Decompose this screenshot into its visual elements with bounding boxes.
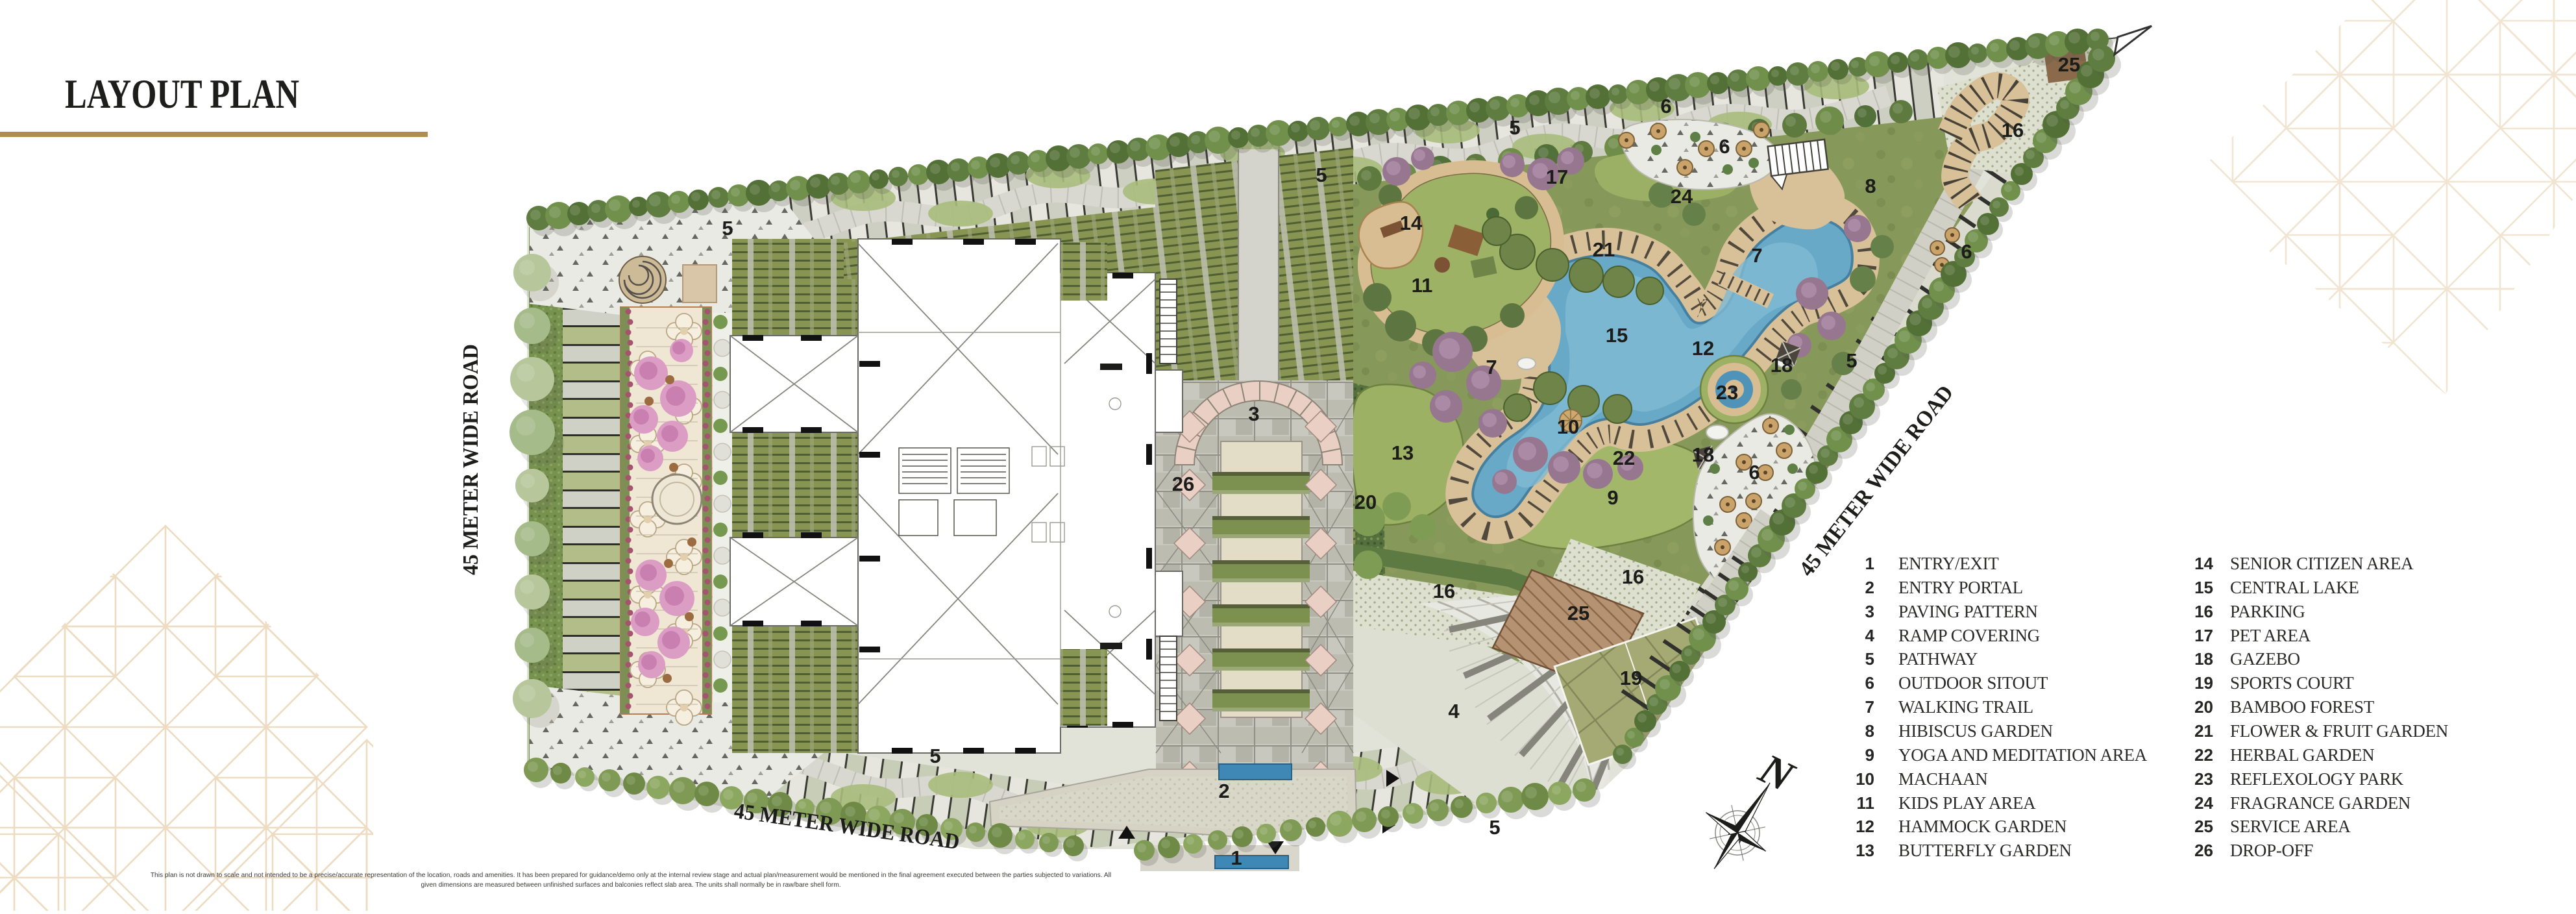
svg-text:This plan is not drawn to scal: This plan is not drawn to scale and not … — [151, 872, 1111, 879]
svg-text:9: 9 — [1607, 486, 1618, 509]
svg-text:21: 21 — [2194, 721, 2213, 741]
svg-text:26: 26 — [2194, 841, 2213, 860]
svg-text:9: 9 — [1865, 745, 1874, 765]
svg-text:7: 7 — [1865, 697, 1874, 717]
svg-text:17: 17 — [1546, 166, 1568, 188]
svg-text:SERVICE AREA: SERVICE AREA — [2230, 817, 2351, 836]
svg-text:HERBAL GARDEN: HERBAL GARDEN — [2230, 745, 2374, 765]
svg-text:25: 25 — [1567, 602, 1589, 624]
svg-text:10: 10 — [1856, 769, 1874, 789]
svg-text:MACHAAN: MACHAAN — [1898, 769, 1987, 789]
svg-text:FRAGRANCE GARDEN: FRAGRANCE GARDEN — [2230, 793, 2410, 813]
svg-text:18: 18 — [1771, 354, 1793, 377]
svg-text:6: 6 — [1660, 95, 1671, 117]
svg-text:8: 8 — [1865, 175, 1876, 197]
svg-text:HAMMOCK GARDEN: HAMMOCK GARDEN — [1898, 817, 2067, 836]
svg-text:YOGA AND MEDITATION AREA: YOGA AND MEDITATION AREA — [1898, 745, 2148, 765]
svg-text:20: 20 — [1355, 491, 1377, 513]
svg-text:WALKING TRAIL: WALKING TRAIL — [1898, 697, 2033, 717]
svg-text:11: 11 — [1412, 274, 1433, 297]
svg-text:19: 19 — [1620, 667, 1642, 689]
svg-text:5: 5 — [929, 745, 940, 767]
svg-text:24: 24 — [2194, 793, 2213, 813]
svg-text:DROP-OFF: DROP-OFF — [2230, 841, 2313, 860]
svg-text:16: 16 — [1622, 565, 1644, 588]
svg-text:1: 1 — [1231, 846, 1242, 869]
svg-text:7: 7 — [1751, 244, 1762, 267]
svg-text:5: 5 — [1865, 649, 1874, 669]
svg-text:LAYOUT PLAN: LAYOUT PLAN — [65, 71, 299, 117]
svg-text:RAMP COVERING: RAMP COVERING — [1898, 626, 2040, 645]
svg-text:12: 12 — [1692, 337, 1714, 360]
svg-text:23: 23 — [1716, 381, 1738, 404]
svg-text:11: 11 — [1857, 793, 1875, 813]
svg-text:OUTDOOR SITOUT: OUTDOOR SITOUT — [1898, 673, 2048, 693]
svg-text:1: 1 — [1865, 554, 1874, 573]
svg-text:15: 15 — [2194, 578, 2213, 597]
svg-text:15: 15 — [1606, 324, 1628, 347]
svg-text:SPORTS COURT: SPORTS COURT — [2230, 673, 2354, 693]
svg-text:26: 26 — [1172, 473, 1194, 495]
svg-text:5: 5 — [722, 217, 733, 240]
svg-text:2: 2 — [1218, 780, 1229, 802]
svg-text:14: 14 — [2194, 554, 2213, 573]
svg-text:16: 16 — [2002, 119, 2024, 142]
svg-text:22: 22 — [1613, 447, 1635, 469]
svg-text:16: 16 — [2194, 602, 2213, 621]
svg-text:SENIOR CITIZEN AREA: SENIOR CITIZEN AREA — [2230, 554, 2414, 573]
svg-text:10: 10 — [1557, 415, 1579, 438]
svg-text:25: 25 — [2194, 817, 2213, 836]
svg-text:16: 16 — [1433, 580, 1455, 602]
svg-text:45 METER WIDE ROAD: 45 METER WIDE ROAD — [459, 344, 483, 575]
svg-text:given dimensions are measured: given dimensions are measured between un… — [421, 882, 840, 889]
svg-text:24: 24 — [1671, 185, 1693, 208]
svg-text:8: 8 — [1865, 721, 1874, 741]
svg-text:5: 5 — [1316, 164, 1327, 186]
svg-text:14: 14 — [1400, 212, 1423, 234]
svg-text:PARKING: PARKING — [2230, 602, 2305, 621]
svg-text:6: 6 — [1719, 135, 1730, 158]
svg-text:6: 6 — [1961, 240, 1972, 263]
svg-text:7: 7 — [1486, 356, 1497, 378]
svg-text:21: 21 — [1593, 238, 1615, 261]
svg-text:3: 3 — [1248, 402, 1259, 425]
svg-text:BUTTERFLY GARDEN: BUTTERFLY GARDEN — [1898, 841, 2072, 860]
svg-text:5: 5 — [1846, 349, 1857, 372]
svg-text:13: 13 — [1856, 841, 1874, 860]
svg-text:17: 17 — [2194, 626, 2213, 645]
svg-text:ENTRY PORTAL: ENTRY PORTAL — [1898, 578, 2023, 597]
svg-text:6: 6 — [1748, 461, 1760, 484]
svg-text:CENTRAL LAKE: CENTRAL LAKE — [2230, 578, 2359, 597]
svg-text:3: 3 — [1865, 602, 1874, 621]
svg-text:PAVING PATTERN: PAVING PATTERN — [1898, 602, 2038, 621]
svg-text:PATHWAY: PATHWAY — [1898, 649, 1978, 669]
svg-text:4: 4 — [1448, 700, 1460, 723]
svg-text:BAMBOO FOREST: BAMBOO FOREST — [2230, 697, 2375, 717]
svg-text:5: 5 — [1489, 816, 1500, 839]
svg-text:N: N — [1752, 745, 1802, 802]
svg-text:12: 12 — [1856, 817, 1874, 836]
svg-text:2: 2 — [1865, 578, 1874, 597]
svg-text:19: 19 — [2194, 673, 2213, 693]
svg-text:ENTRY/EXIT: ENTRY/EXIT — [1898, 554, 1999, 573]
svg-text:GAZEBO: GAZEBO — [2230, 649, 2300, 669]
svg-text:18: 18 — [2194, 649, 2213, 669]
svg-text:PET AREA: PET AREA — [2230, 626, 2311, 645]
svg-text:4: 4 — [1865, 626, 1875, 645]
svg-text:5: 5 — [1509, 116, 1520, 139]
svg-text:HIBISCUS GARDEN: HIBISCUS GARDEN — [1898, 721, 2053, 741]
svg-text:20: 20 — [2194, 697, 2213, 717]
svg-text:13: 13 — [1392, 441, 1414, 464]
svg-text:18: 18 — [1692, 443, 1714, 466]
svg-text:6: 6 — [1865, 673, 1874, 693]
svg-text:22: 22 — [2194, 745, 2213, 765]
svg-text:25: 25 — [2058, 53, 2080, 76]
svg-text:REFLEXOLOGY PARK: REFLEXOLOGY PARK — [2230, 769, 2404, 789]
svg-text:KIDS PLAY AREA: KIDS PLAY AREA — [1898, 793, 2036, 813]
svg-text:FLOWER & FRUIT GARDEN: FLOWER & FRUIT GARDEN — [2230, 721, 2448, 741]
svg-text:23: 23 — [2194, 769, 2213, 789]
